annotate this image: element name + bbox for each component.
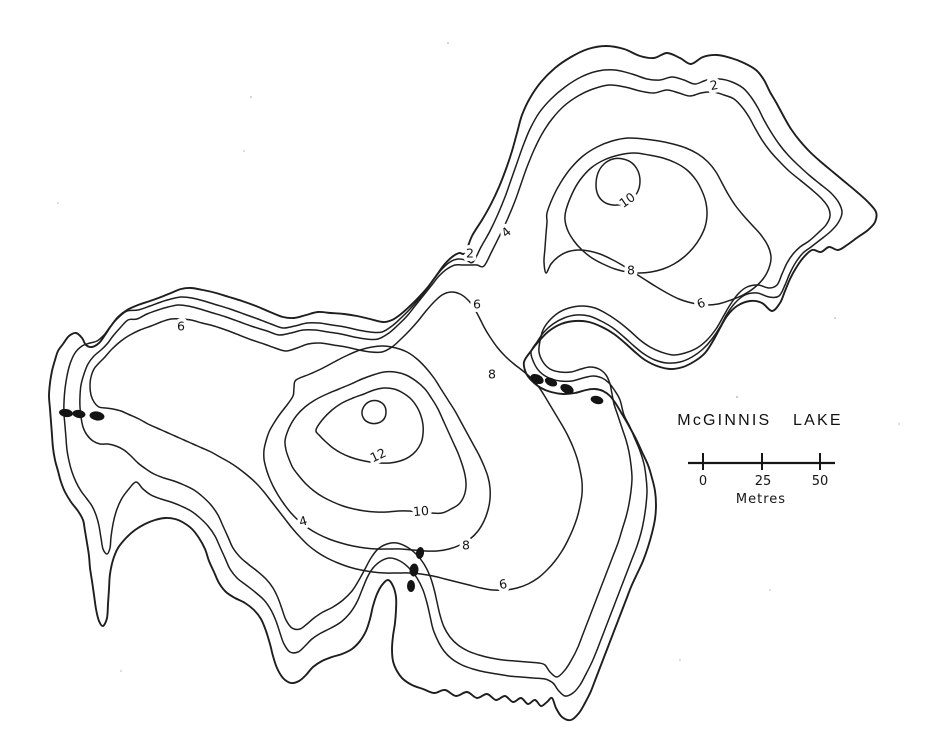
contour-6-ring-northeast: [544, 138, 771, 305]
sample-point-north_channel: [543, 376, 558, 389]
sample-point-west_arm: [59, 408, 74, 418]
map-title: McGINNIS LAKE: [677, 412, 842, 429]
contour-depth-label: 2: [466, 246, 474, 261]
scale-bar-label-0: 0: [699, 474, 707, 489]
shoreline-path: [49, 46, 877, 720]
scale-bar-label-25: 25: [755, 474, 772, 489]
contour-depth-label: 10: [616, 189, 638, 210]
contour-2-ring: [64, 70, 842, 696]
sample-point-south_shore: [407, 580, 415, 592]
contour-depth-label: 8: [488, 367, 496, 382]
deep-hole-loop: [362, 400, 386, 423]
contour-depth-label: 6: [695, 295, 708, 312]
contour-depth-label: 10: [412, 503, 429, 519]
sample-point-north_channel: [590, 394, 605, 405]
contour-10-ring-central: [285, 372, 466, 514]
contour-depth-label: 6: [473, 297, 481, 312]
bathymetric-map: 22461086681210486 McGINNIS LAKE 0 25 50 …: [0, 0, 940, 738]
contour-6-ring-west: [90, 292, 582, 590]
sample-point-south_shore: [415, 546, 425, 559]
scale-bar-label-50: 50: [812, 474, 829, 489]
contour-depth-label: 4: [297, 513, 309, 530]
contour-depth-label: 8: [462, 538, 470, 553]
sample-point-west_arm: [72, 409, 86, 419]
contour-labels-group: 22461086681210486: [177, 77, 719, 592]
contour-lines-group: [49, 46, 877, 720]
map-title-group: McGINNIS LAKE: [677, 412, 842, 429]
sample-point-south_shore: [409, 563, 419, 577]
contour-depth-label: 8: [627, 263, 635, 278]
contour-depth-label: 4: [498, 224, 514, 241]
scale-bar-unit: Metres: [736, 492, 786, 507]
map-page: 22461086681210486 McGINNIS LAKE 0 25 50 …: [0, 0, 940, 738]
contour-8-ring-northeast: [565, 153, 707, 273]
sample-point-west_arm: [89, 411, 105, 422]
contour-depth-label: 6: [498, 576, 508, 592]
scale-bar: 0 25 50 Metres: [688, 453, 835, 507]
sample-point-dots-group: [59, 372, 605, 592]
contour-depth-label: 6: [177, 319, 185, 334]
